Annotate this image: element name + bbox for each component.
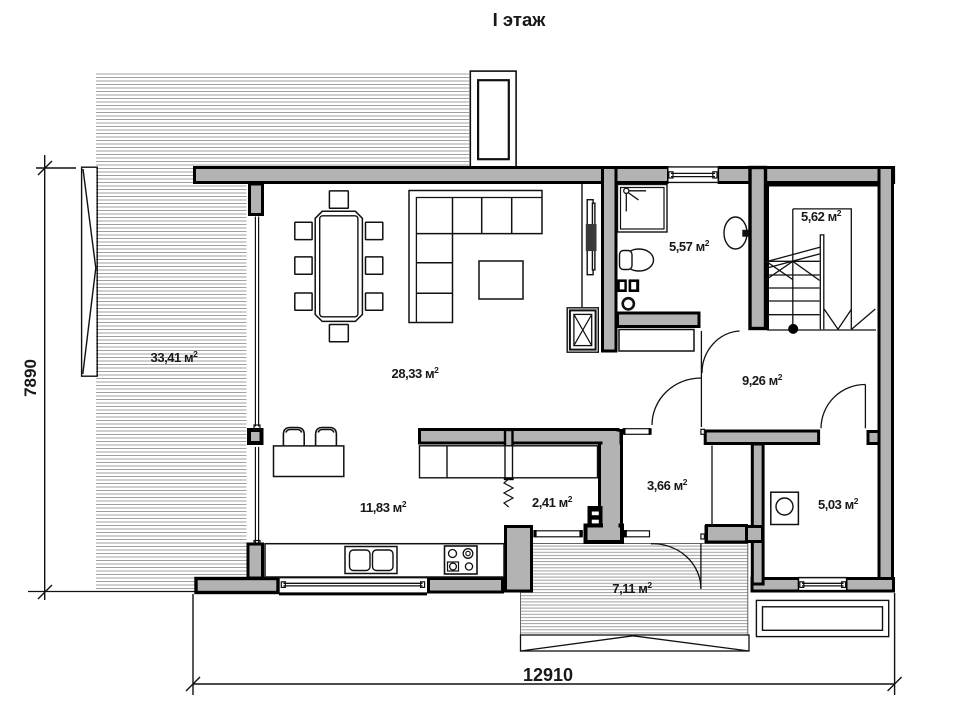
svg-text:11,83 м2: 11,83 м2 [360,499,407,515]
svg-text:33,41 м2: 33,41 м2 [151,349,199,365]
svg-text:28,33 м2: 28,33 м2 [392,365,440,381]
svg-text:7,11 м2: 7,11 м2 [612,580,652,596]
svg-text:7890: 7890 [21,359,40,397]
svg-text:5,03 м2: 5,03 м2 [818,496,859,512]
svg-text:2,41 м2: 2,41 м2 [532,494,573,510]
svg-text:5,57 м2: 5,57 м2 [669,238,710,254]
svg-text:I этаж: I этаж [493,9,547,30]
svg-text:5,62 м2: 5,62 м2 [801,208,842,224]
svg-text:9,26 м2: 9,26 м2 [742,372,783,388]
svg-text:12910: 12910 [523,665,573,685]
svg-text:3,66 м2: 3,66 м2 [647,477,688,493]
